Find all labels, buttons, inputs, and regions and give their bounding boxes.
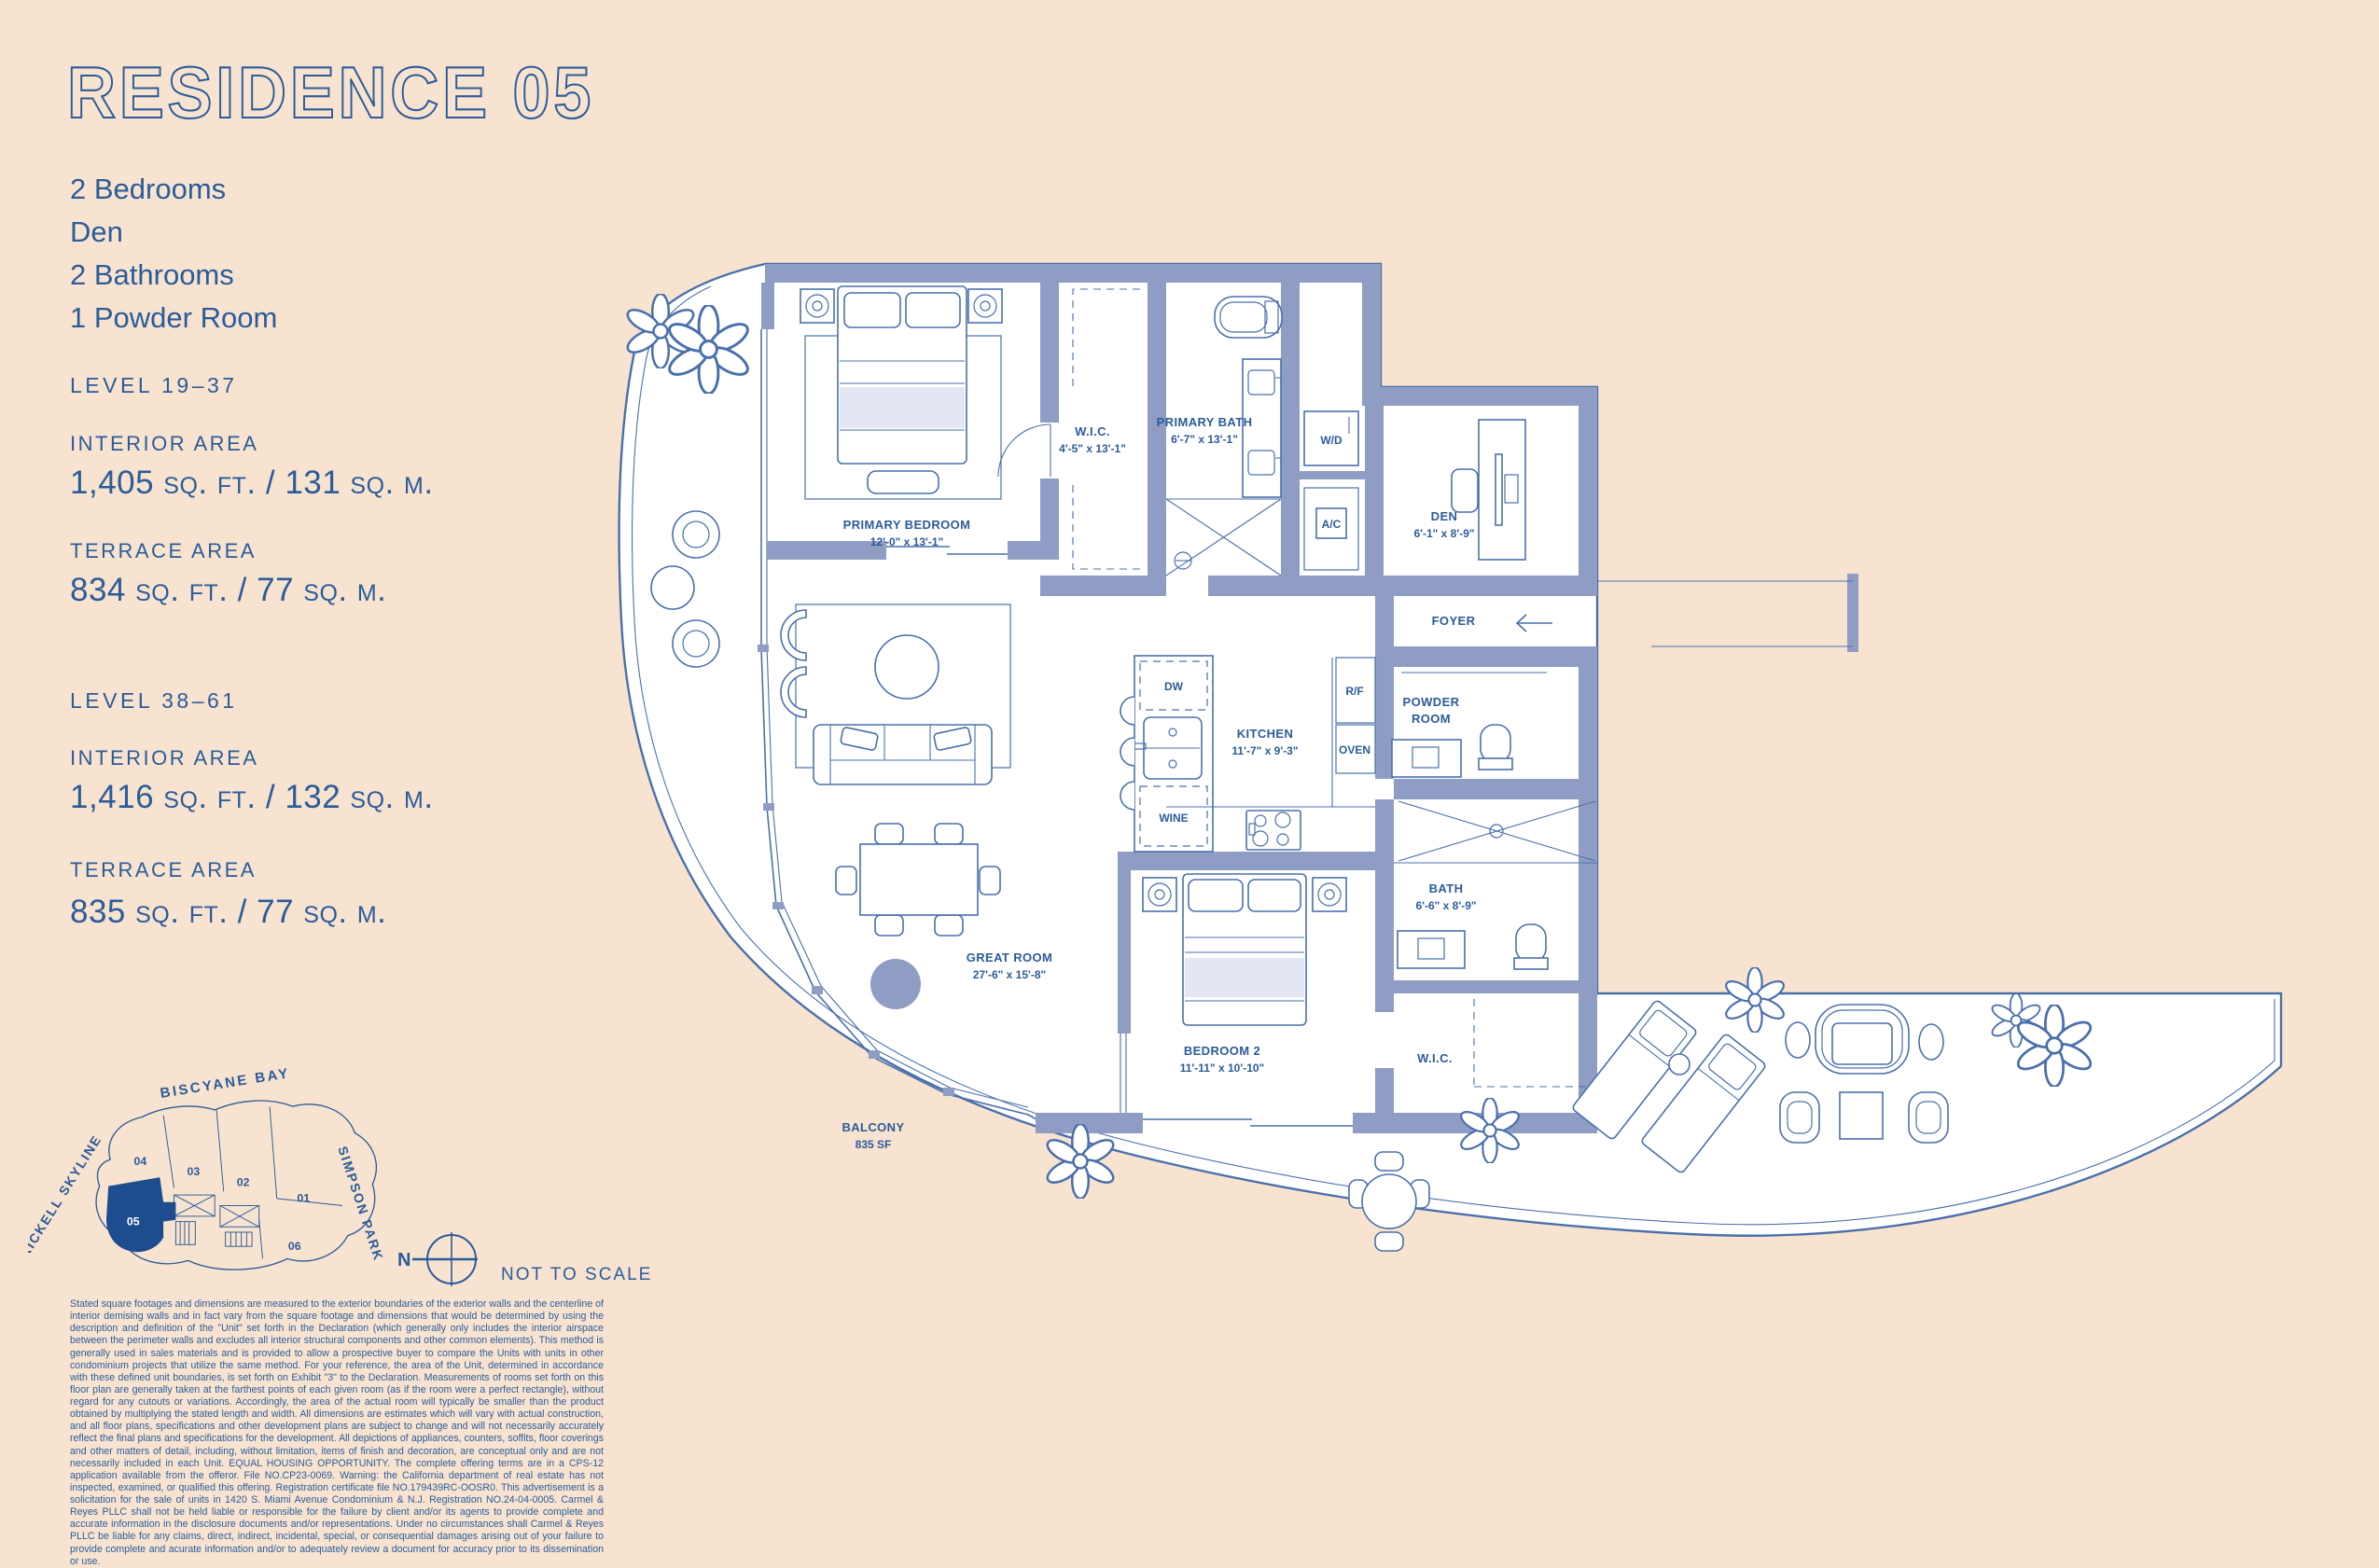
keyplan-unit-05: 05 <box>127 1214 140 1228</box>
legal-disclaimer: Stated square footages and dimensions ar… <box>70 1298 604 1568</box>
keyplan-unit-06: 06 <box>288 1240 301 1253</box>
foyer-walkway <box>1597 581 1853 646</box>
page-title: RESIDENCE 05 <box>63 47 642 140</box>
summary-powder: 1 Powder Room <box>70 297 277 340</box>
sofa <box>814 725 992 784</box>
bath2-toilet <box>1514 924 1548 969</box>
oven-label: OVEN <box>1339 743 1370 756</box>
dw-label: DW <box>1164 680 1184 693</box>
keyplan-building: 04 03 02 01 06 05 <box>96 1101 376 1270</box>
ac-label: A/C <box>1322 518 1342 531</box>
outdoor-sofa <box>1816 1005 1909 1074</box>
keyplan-unit-02: 02 <box>237 1176 250 1189</box>
great-room-dims: 27'-6" x 15'-8" <box>973 968 1046 981</box>
primary-bedroom-dims: 12'-0" x 13'-1" <box>870 535 943 548</box>
bath2-dims: 6'-6" x 8'-9" <box>1415 899 1476 912</box>
pillow <box>844 293 900 327</box>
side-table <box>1919 1024 1943 1060</box>
wicker-chair <box>673 511 719 558</box>
bench <box>868 471 939 493</box>
round-table <box>651 566 694 609</box>
keyplan-park-label: SIMPSON PARK <box>335 1145 386 1263</box>
keyplan-bay-label: BISCYANE BAY <box>160 1065 292 1102</box>
floorplan-sheet: { "colors": { "background": "#f7e3d0", "… <box>0 0 2379 1539</box>
level-2-interior-label: INTERIOR AREA <box>70 746 258 770</box>
pillow <box>1189 880 1243 911</box>
unit-summary: 2 Bedrooms Den 2 Bathrooms 1 Powder Room <box>70 168 277 340</box>
bath2-label: BATH <box>1429 881 1464 895</box>
balcony-label: BALCONY <box>842 1120 904 1134</box>
wic1-label: W.I.C. <box>1075 424 1110 438</box>
level-1-terrace-value: 834 SQ. FT. / 77 SQ. M. <box>70 572 386 609</box>
square-table <box>1840 1092 1883 1139</box>
bedroom2-dims: 11'-11" x 10'-10" <box>1180 1062 1265 1075</box>
den-label: DEN <box>1431 509 1458 523</box>
summary-bedrooms: 2 Bedrooms <box>70 168 277 211</box>
north-label: N <box>397 1250 410 1270</box>
level-1-terrace-label: TERRACE AREA <box>70 539 257 563</box>
level-2-terrace-label: TERRACE AREA <box>70 858 257 882</box>
level-2-name: LEVEL 38–61 <box>70 688 238 714</box>
powder-room-label-1: POWDER <box>1403 695 1460 709</box>
foyer-label: FOYER <box>1432 614 1476 628</box>
powder-sink <box>1392 740 1461 777</box>
bed <box>1183 874 1306 1025</box>
powder-room-label-2: ROOM <box>1412 712 1451 726</box>
bed <box>838 286 967 464</box>
bathtub <box>1215 297 1282 338</box>
pillow <box>1248 880 1301 911</box>
keyplan-unit-03: 03 <box>188 1165 201 1178</box>
island-stools <box>1120 697 1134 810</box>
nightstand <box>1143 878 1176 911</box>
wicker-lounge-chair <box>1780 1092 1819 1143</box>
wd-label: W/D <box>1320 434 1343 447</box>
bath2-vanity <box>1398 931 1465 968</box>
side-table <box>1669 1054 1690 1075</box>
nightstand <box>1313 878 1346 911</box>
primary-bedroom-label: PRIMARY BEDROOM <box>843 518 971 532</box>
north-arrow: N <box>392 1222 504 1297</box>
level-2-terrace-value: 835 SQ. FT. / 77 SQ. M. <box>70 894 386 931</box>
pillow <box>906 293 960 327</box>
side-table <box>1786 1022 1810 1058</box>
wicker-lounge-chair <box>1909 1092 1948 1143</box>
monitor <box>1496 454 1502 525</box>
level-2-interior-value: 1,416 SQ. FT. / 132 SQ. M. <box>70 779 434 816</box>
wic2-label: W.I.C. <box>1417 1051 1453 1065</box>
rf-label: R/F <box>1345 685 1363 698</box>
bedroom2-label: BEDROOM 2 <box>1184 1044 1260 1058</box>
great-room-label: GREAT ROOM <box>967 951 1053 964</box>
level-1-name: LEVEL 19–37 <box>70 373 238 398</box>
kitchen-label: KITCHEN <box>1237 727 1294 741</box>
keyplan-unit-04: 04 <box>134 1155 147 1168</box>
coffee-table <box>875 635 939 699</box>
summary-bathrooms: 2 Bathrooms <box>70 254 277 297</box>
keyplan-unit-01: 01 <box>297 1192 310 1205</box>
planter <box>870 959 921 1009</box>
keyplan-skyline-label: BRICKELL SKYLINE <box>28 1132 104 1270</box>
kitchen-dims: 11'-7" x 9'-3" <box>1231 744 1298 757</box>
wicker-chair <box>673 620 719 667</box>
cooktop <box>1246 811 1301 850</box>
summary-den: Den <box>70 211 277 254</box>
level-1-interior-label: INTERIOR AREA <box>70 432 258 456</box>
desk-chair <box>1452 469 1478 512</box>
floor-plan: PRIMARY BEDROOM 12'-0" x 13'-1" W.I.C. 4… <box>606 247 2286 1311</box>
wic1-dims: 4'-5" x 13'-1" <box>1059 442 1126 455</box>
balcony-dims: 835 SF <box>856 1138 892 1151</box>
page-title-text: RESIDENCE 05 <box>67 51 594 133</box>
keyplan-unit-05-highlight <box>106 1177 175 1252</box>
wine-label: WINE <box>1159 812 1188 825</box>
level-1-interior-value: 1,405 SQ. FT. / 131 SQ. M. <box>70 465 434 502</box>
den-dims: 6'-1" x 8'-9" <box>1413 527 1474 540</box>
primary-bath-dims: 6'-7" x 13'-1" <box>1171 433 1238 446</box>
powder-toilet <box>1479 725 1512 770</box>
primary-bath-label: PRIMARY BATH <box>1157 415 1253 429</box>
